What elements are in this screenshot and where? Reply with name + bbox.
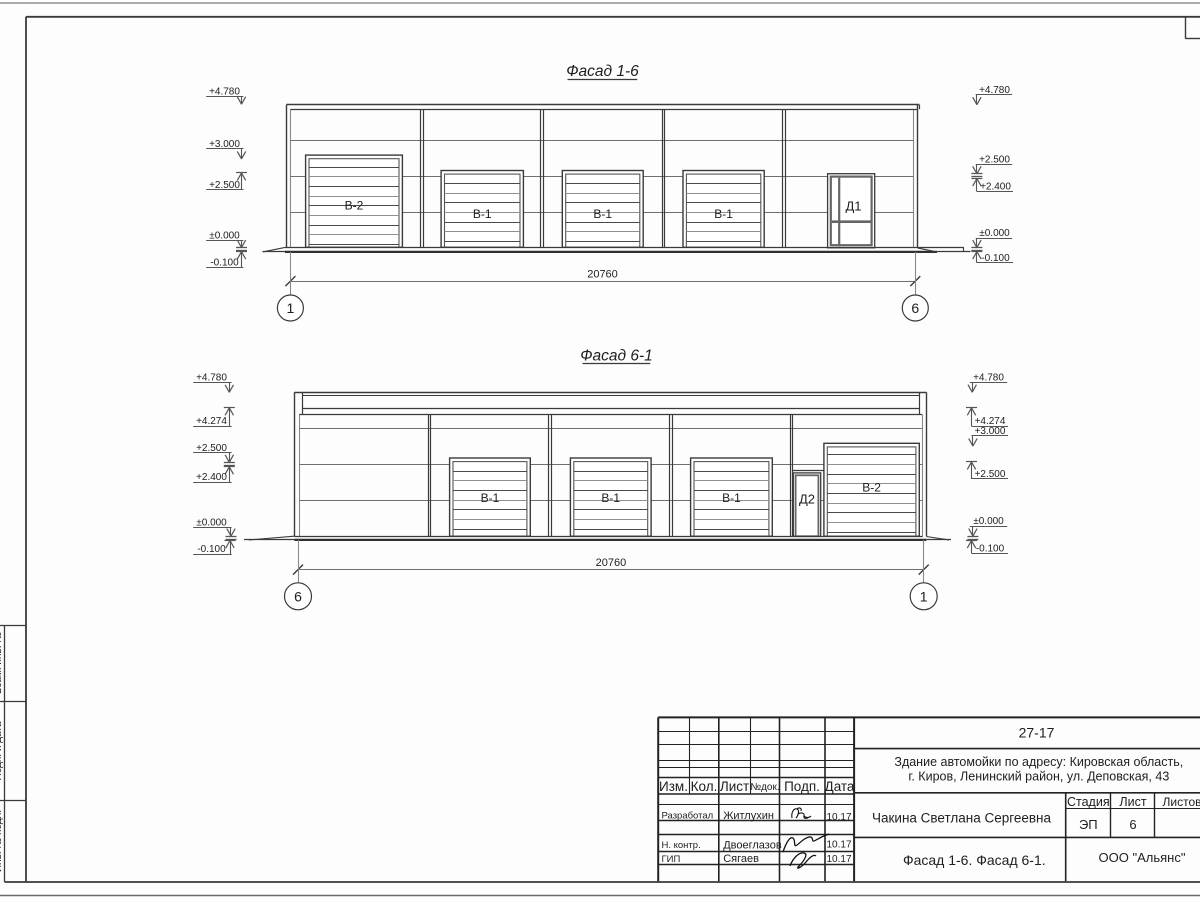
svg-text:+2.400: +2.400 <box>196 472 227 483</box>
svg-text:+2.500: +2.500 <box>196 443 227 454</box>
svg-text:-0.100: -0.100 <box>976 543 1005 554</box>
svg-text:В-1: В-1 <box>601 491 620 505</box>
svg-text:Фасад 1-6: Фасад 1-6 <box>566 63 639 80</box>
svg-text:-0.100: -0.100 <box>210 258 239 269</box>
svg-text:г. Киров, Ленинский район, ул.: г. Киров, Ленинский район, ул. Деповская… <box>908 769 1169 783</box>
svg-text:Взам. инв. №: Взам. инв. № <box>0 632 4 694</box>
svg-text:Двоеглазов: Двоеглазов <box>723 839 782 851</box>
svg-text:Н. контр.: Н. контр. <box>662 840 701 851</box>
svg-text:20760: 20760 <box>587 269 618 281</box>
svg-text:Разработал: Разработал <box>662 811 714 822</box>
svg-text:+4.274: +4.274 <box>196 416 227 427</box>
svg-text:+4.780: +4.780 <box>196 373 227 384</box>
svg-text:±0.000: ±0.000 <box>196 518 227 529</box>
svg-text:Фасад 1-6. Фасад 6-1.: Фасад 1-6. Фасад 6-1. <box>903 852 1046 868</box>
svg-text:В-1: В-1 <box>473 207 492 221</box>
svg-text:Дата: Дата <box>825 779 855 794</box>
svg-text:Лист: Лист <box>720 779 749 794</box>
svg-text:±0.000: ±0.000 <box>209 230 240 241</box>
svg-text:+2.500: +2.500 <box>979 154 1010 165</box>
svg-text:±0.000: ±0.000 <box>979 228 1010 239</box>
svg-text:+2.500: +2.500 <box>975 469 1006 480</box>
svg-text:В-1: В-1 <box>714 207 733 221</box>
svg-text:6: 6 <box>1129 817 1136 832</box>
svg-text:+3.000: +3.000 <box>975 426 1006 437</box>
svg-text:-0.100: -0.100 <box>981 253 1010 264</box>
svg-text:Житлухин: Житлухин <box>723 810 774 822</box>
svg-text:В-1: В-1 <box>722 491 741 505</box>
svg-text:Фасад 6-1: Фасад 6-1 <box>580 348 653 365</box>
svg-text:1: 1 <box>920 588 928 604</box>
svg-text:Сягаев: Сягаев <box>723 853 759 865</box>
svg-text:ЭП: ЭП <box>1079 817 1098 832</box>
svg-text:10.17: 10.17 <box>826 854 851 865</box>
svg-text:6: 6 <box>911 300 919 316</box>
svg-text:+4.780: +4.780 <box>973 372 1004 383</box>
svg-text:№док.: №док. <box>750 782 779 793</box>
svg-text:20760: 20760 <box>596 557 627 569</box>
svg-text:Листов: Листов <box>1163 795 1200 809</box>
svg-text:Чакина Светлана Сергеевна: Чакина Светлана Сергеевна <box>872 810 1052 825</box>
svg-text:Д1: Д1 <box>845 199 861 214</box>
svg-text:+2.500: +2.500 <box>209 180 240 191</box>
svg-text:+2.400: +2.400 <box>980 182 1011 193</box>
svg-text:В-2: В-2 <box>862 481 881 495</box>
svg-text:Здание автомойки по адресу: Ки: Здание автомойки по адресу: Кировская об… <box>894 755 1183 769</box>
svg-text:1: 1 <box>287 300 295 316</box>
svg-text:6: 6 <box>294 588 302 604</box>
svg-text:27-17: 27-17 <box>1019 725 1055 741</box>
svg-text:+4.780: +4.780 <box>209 86 240 97</box>
svg-text:+4.780: +4.780 <box>979 85 1010 96</box>
svg-text:В-1: В-1 <box>593 207 612 221</box>
svg-text:Изм.: Изм. <box>659 779 688 794</box>
svg-text:-0.100: -0.100 <box>197 544 226 555</box>
svg-text:±0.000: ±0.000 <box>973 516 1004 527</box>
svg-text:Кол.: Кол. <box>691 779 718 794</box>
svg-text:Подп. и дата: Подп. и дата <box>0 721 4 780</box>
svg-text:ООО "Альянс": ООО "Альянс" <box>1099 850 1186 865</box>
svg-text:Подп.: Подп. <box>784 779 820 794</box>
svg-text:Д2: Д2 <box>799 492 815 507</box>
svg-text:Стадия: Стадия <box>1067 795 1110 809</box>
svg-text:В-1: В-1 <box>481 491 500 505</box>
svg-text:ГИП: ГИП <box>662 854 681 865</box>
svg-text:10.17: 10.17 <box>826 840 851 851</box>
svg-text:Лист: Лист <box>1119 795 1146 809</box>
svg-text:+3.000: +3.000 <box>209 139 240 150</box>
svg-text:Инв. № подл.: Инв. № подл. <box>0 810 4 872</box>
svg-text:10.17: 10.17 <box>826 812 851 823</box>
svg-text:В-2: В-2 <box>345 199 364 213</box>
